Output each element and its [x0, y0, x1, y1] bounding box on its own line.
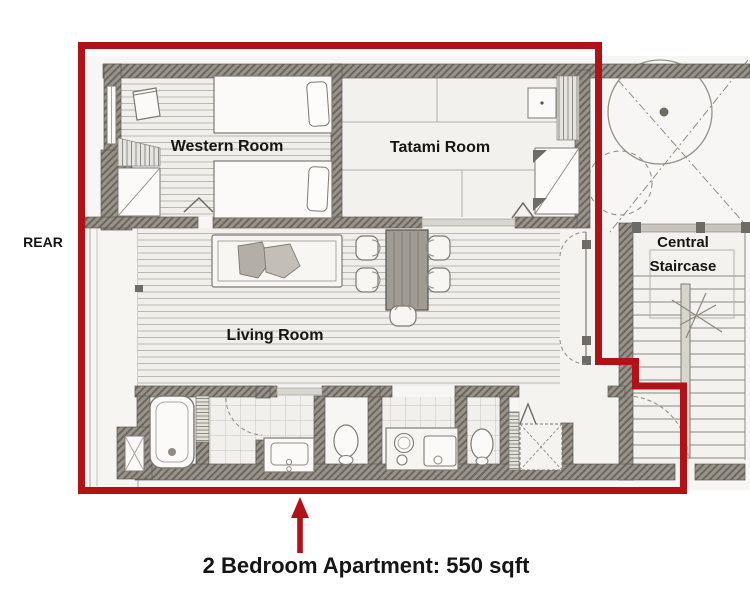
tatami-room-label: Tatami Room	[390, 139, 490, 156]
wall-post	[380, 386, 392, 397]
rear-label: REAR	[23, 234, 63, 250]
closet-panel	[557, 76, 579, 140]
toilet-base	[476, 457, 488, 465]
wall-top	[103, 64, 750, 78]
floor-plan-drawing: REAR Western Room Tatami Room Living Roo…	[0, 0, 750, 600]
toilet-icon	[334, 425, 358, 457]
wall-bottom-right	[695, 464, 745, 480]
dining-table-icon	[386, 230, 428, 310]
cabinet-strip	[509, 412, 519, 470]
chair-icon	[390, 306, 416, 326]
wall-entry-left	[561, 423, 573, 470]
central-staircase-label-line2: Staircase	[650, 258, 717, 275]
pillow-icon	[306, 81, 329, 126]
central-staircase-label-line1: Central	[657, 234, 709, 251]
staircase-top-wall	[632, 224, 750, 232]
wall-staircase-left	[619, 223, 633, 480]
wall-post	[632, 222, 641, 233]
wall-segment	[368, 397, 382, 470]
caption-arrow-icon	[291, 497, 309, 553]
kitchen-tile-floor	[380, 397, 456, 429]
wall-toilet-right	[500, 396, 509, 470]
wall-segment	[314, 396, 325, 470]
door-post	[582, 336, 591, 345]
wall-mid	[213, 217, 422, 228]
caption-label: 2 Bedroom Apartment: 550 sqft	[203, 553, 530, 578]
living-room-label: Living Room	[227, 327, 324, 344]
wall-entry-post	[608, 386, 625, 397]
stove-burner-icon	[397, 455, 407, 465]
wall-vent-strip	[196, 396, 209, 442]
drain-icon	[168, 448, 176, 456]
door-threshold	[277, 388, 322, 395]
chair-icon	[356, 268, 378, 292]
western-room-label: Western Room	[171, 138, 284, 155]
wall-mid	[515, 217, 577, 228]
toilet-icon	[471, 429, 493, 459]
tree-trunk-dot	[660, 108, 669, 117]
kitchen-sink-icon	[424, 436, 456, 466]
wall-post	[696, 222, 705, 233]
wall-post	[741, 222, 750, 233]
wall-post	[256, 386, 270, 398]
chair-icon	[428, 268, 450, 292]
stove-burner-icon	[395, 434, 414, 453]
wall-mid	[85, 217, 198, 228]
pillow-icon	[307, 167, 329, 212]
wall-bath-top	[322, 386, 380, 397]
sliding-door-threshold	[422, 219, 515, 226]
floor-plan-page: REAR Western Room Tatami Room Living Roo…	[0, 0, 750, 600]
chair-icon	[356, 236, 378, 260]
door-post	[582, 240, 591, 249]
chair-icon	[428, 236, 450, 260]
wall-bath-top	[455, 386, 519, 397]
toilet-base	[339, 456, 353, 465]
balcony-door-stop	[135, 285, 143, 292]
wall-bedroom-divider	[331, 64, 342, 228]
